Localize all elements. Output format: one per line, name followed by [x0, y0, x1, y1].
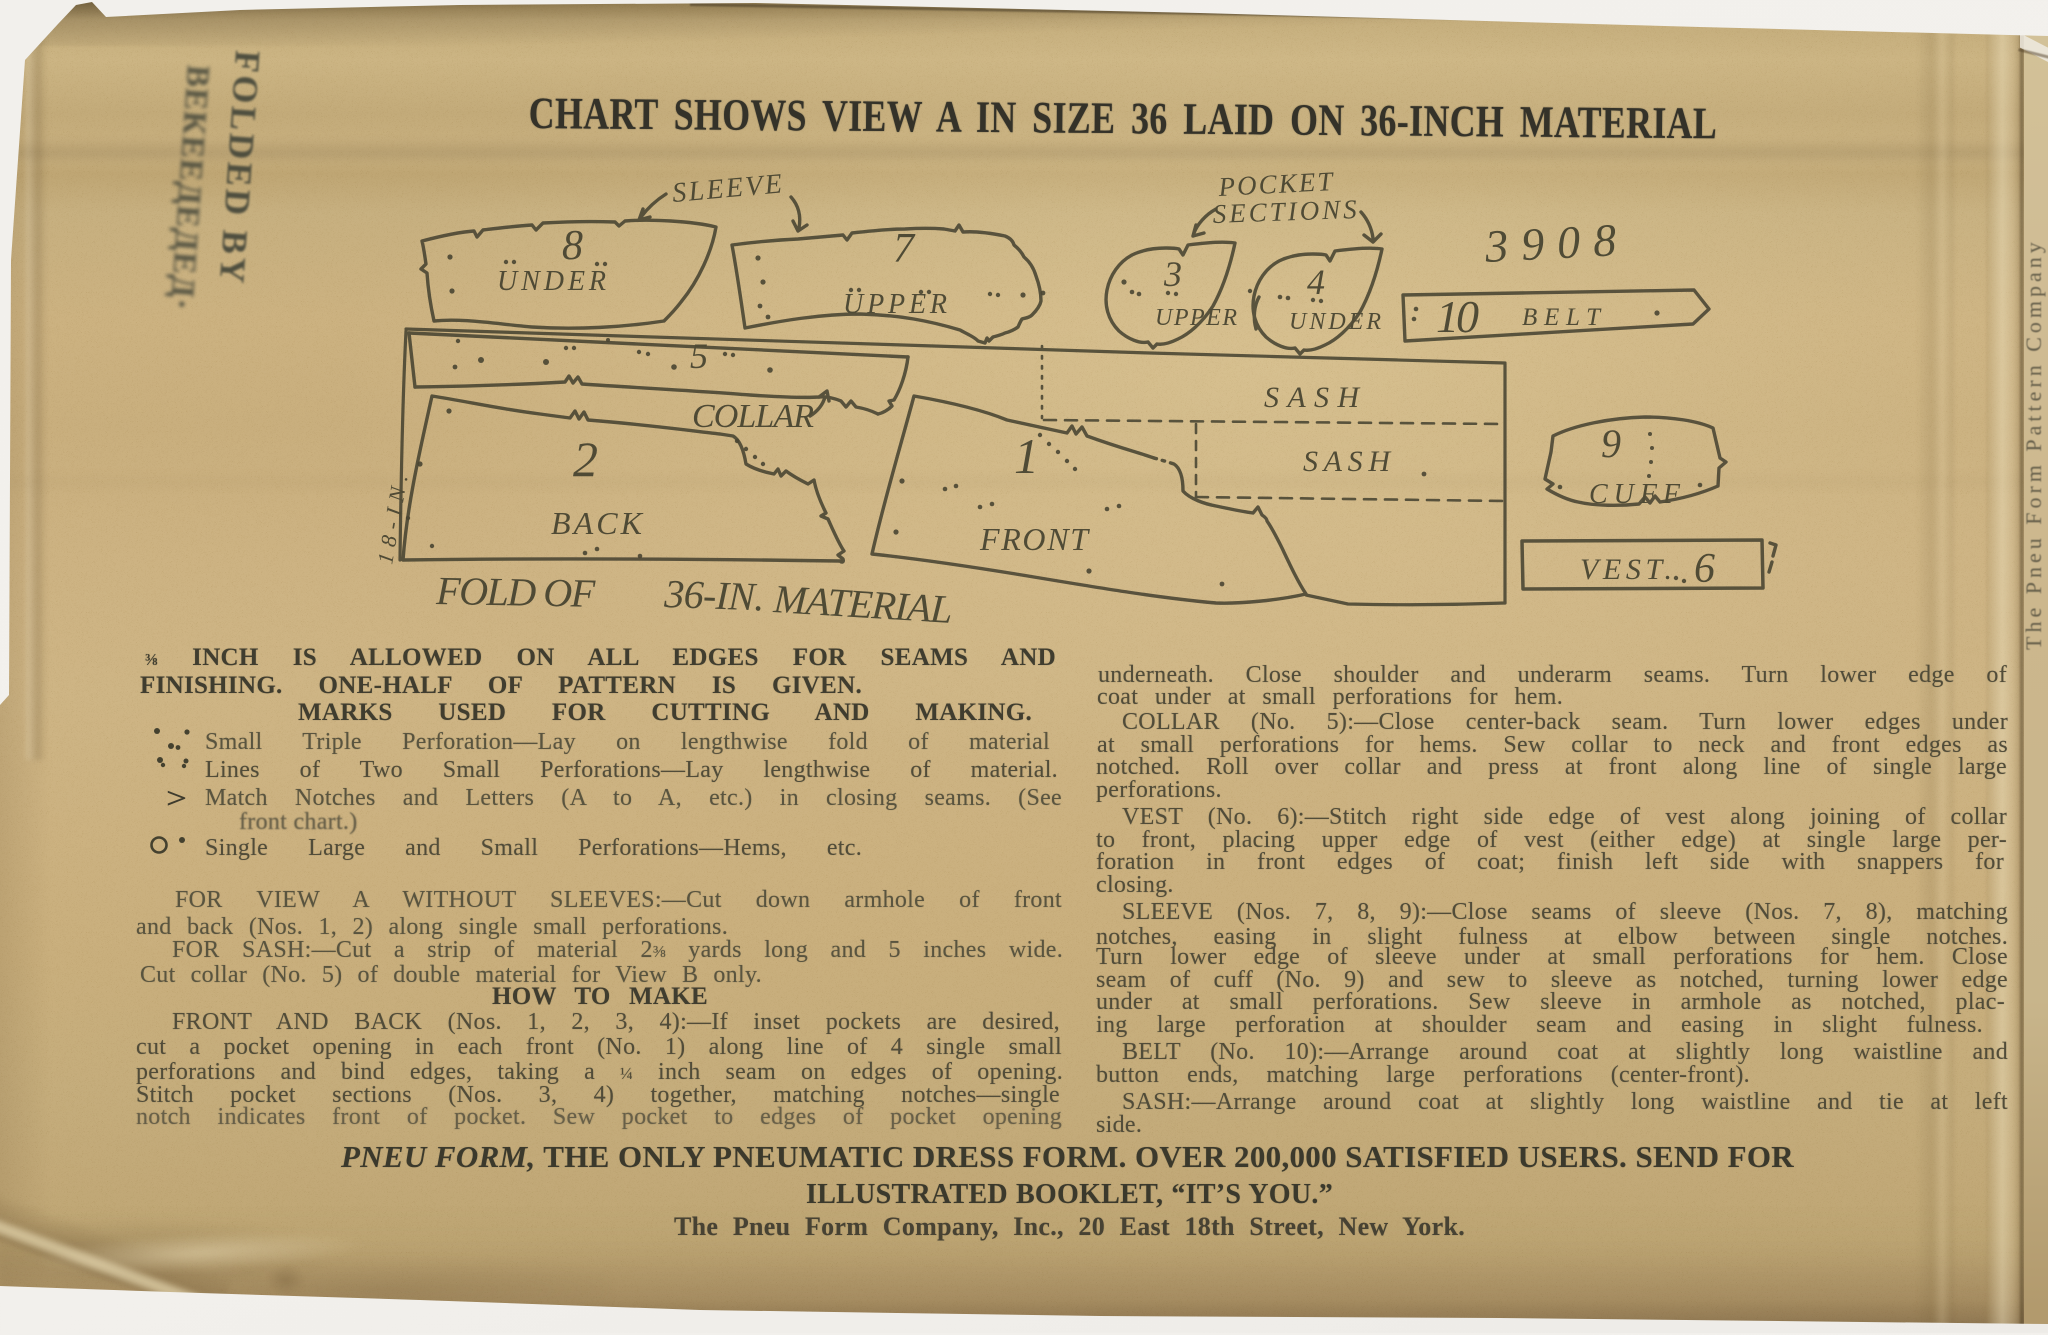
- svg-text:10: 10: [1436, 291, 1479, 342]
- svg-text:SECTIONS: SECTIONS: [1212, 194, 1359, 229]
- svg-text:8: 8: [562, 223, 583, 269]
- svg-text:7: 7: [893, 226, 916, 272]
- svg-text:COLLAR: COLLAR: [692, 398, 814, 435]
- svg-text:6: 6: [1694, 546, 1715, 592]
- svg-text:3908: 3908: [1483, 214, 1630, 273]
- svg-text:BELT: BELT: [1522, 304, 1602, 331]
- svg-text:4: 4: [1307, 262, 1325, 302]
- svg-text:SASH: SASH: [1303, 445, 1392, 478]
- svg-text:9: 9: [1601, 421, 1621, 466]
- svg-text:SLEEVE: SLEEVE: [671, 168, 785, 209]
- svg-text:UNDER: UNDER: [1289, 309, 1383, 335]
- svg-text:3: 3: [1163, 254, 1182, 294]
- svg-text:BACK: BACK: [551, 505, 644, 541]
- svg-text:UPPER: UPPER: [1155, 305, 1239, 331]
- svg-text:1: 1: [1014, 428, 1039, 484]
- svg-text:VEST.: VEST.: [1580, 553, 1672, 586]
- svg-text:UNDER: UNDER: [497, 266, 606, 297]
- svg-text:5: 5: [690, 336, 708, 376]
- svg-text:2: 2: [573, 431, 598, 487]
- svg-text:FOLD OF: FOLD OF: [435, 568, 596, 616]
- svg-text:FRONT: FRONT: [979, 521, 1090, 557]
- svg-text:UPPER: UPPER: [843, 289, 947, 320]
- svg-text:36-IN.: 36-IN.: [663, 571, 766, 619]
- svg-text:SASH: SASH: [1264, 381, 1361, 414]
- svg-text:MATERIAL: MATERIAL: [771, 576, 953, 632]
